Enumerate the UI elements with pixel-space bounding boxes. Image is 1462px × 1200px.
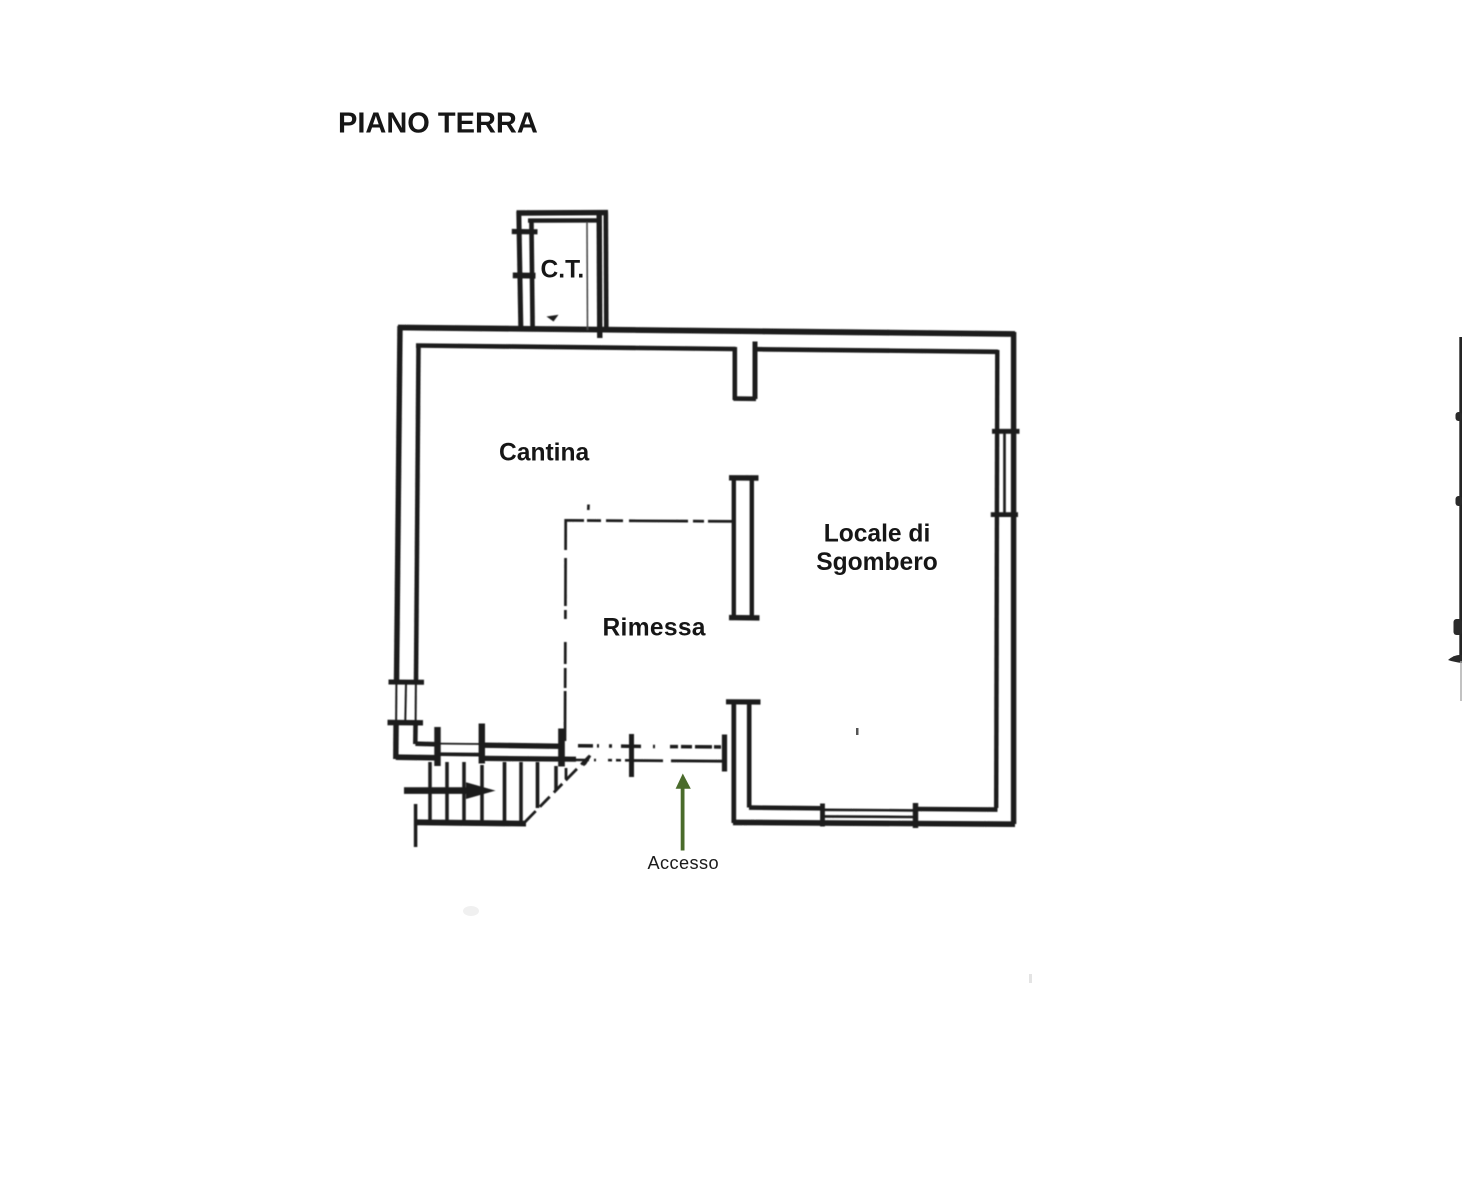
svg-text:Accesso: Accesso: [648, 853, 720, 873]
svg-text:C.T.: C.T.: [541, 257, 585, 284]
svg-text:Cantina: Cantina: [499, 440, 590, 467]
svg-text:PIANO TERRA: PIANO TERRA: [338, 108, 538, 140]
svg-text:Rimessa: Rimessa: [603, 615, 706, 642]
svg-text:Sgombero: Sgombero: [816, 549, 938, 576]
svg-text:Locale di: Locale di: [824, 521, 931, 548]
